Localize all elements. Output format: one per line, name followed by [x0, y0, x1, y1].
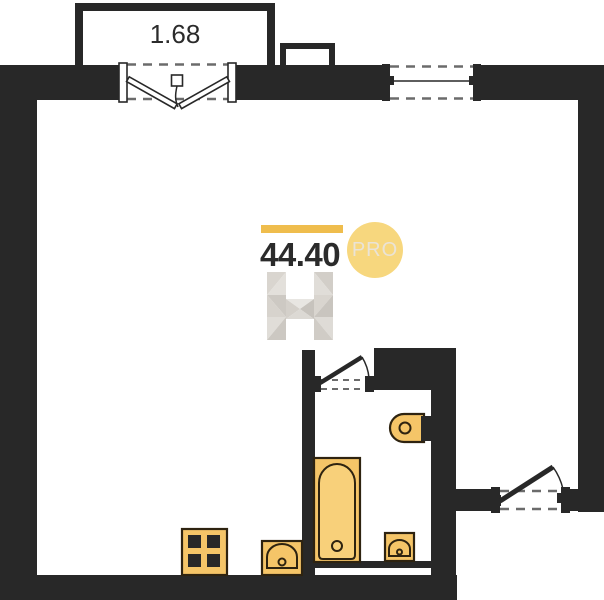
wall-bottom	[0, 575, 457, 600]
wall-left	[0, 65, 37, 600]
door-leaf-left	[127, 77, 178, 109]
entry-wall	[452, 489, 493, 511]
bathtub-basin	[319, 464, 355, 559]
bathroom-wall-top	[374, 348, 456, 390]
stove-icon	[182, 529, 227, 575]
total-area-label: 44.40	[260, 236, 340, 274]
door-jamb	[312, 376, 321, 392]
door-jamb-nub	[557, 493, 563, 503]
door-jamb	[119, 63, 127, 102]
door-swing-arc	[553, 467, 563, 489]
wall-top-middle	[236, 65, 383, 100]
door-leaf-right	[179, 77, 230, 109]
pro-badge: PRO	[347, 222, 403, 278]
toilet-icon	[390, 414, 432, 442]
stove-burner	[188, 554, 201, 567]
bathroom-door	[312, 357, 374, 392]
balcony-french-door	[119, 63, 236, 109]
toilet-bowl	[390, 414, 424, 442]
door-handle	[172, 75, 183, 86]
door-jamb	[365, 376, 374, 392]
door-swing-arc	[362, 357, 369, 378]
balcony-area-label: 1.68	[75, 19, 275, 50]
entrance-door	[491, 467, 570, 513]
brand-bar	[261, 225, 343, 233]
shaft-protrusion-walls	[283, 46, 332, 65]
stove-burner	[207, 535, 220, 548]
toilet-tank	[421, 416, 432, 441]
stove-burner	[188, 535, 201, 548]
kitchen-sink-icon	[262, 541, 302, 575]
wall-right	[578, 65, 604, 512]
pro-badge-label: PRO	[352, 239, 398, 262]
h-logo-watermark	[267, 272, 333, 340]
door-leaf	[500, 467, 553, 501]
bathtub-icon	[314, 458, 360, 562]
stove-burner	[207, 554, 220, 567]
floor-plan: 1.68 44.40 PRO	[0, 0, 604, 600]
bathroom-sink-icon	[385, 533, 414, 561]
window	[382, 64, 481, 101]
